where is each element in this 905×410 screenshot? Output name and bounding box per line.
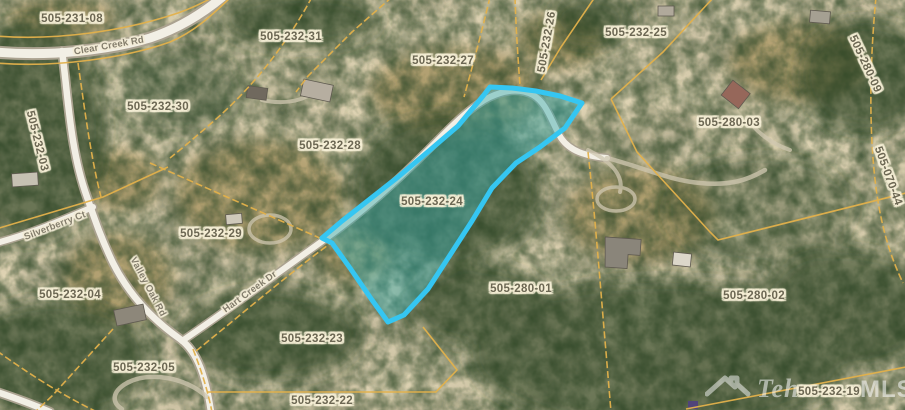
- aerial-map-canvas[interactable]: 505-231-08505-232-31505-232-27505-232-26…: [0, 0, 905, 410]
- map-imagery: [0, 0, 905, 410]
